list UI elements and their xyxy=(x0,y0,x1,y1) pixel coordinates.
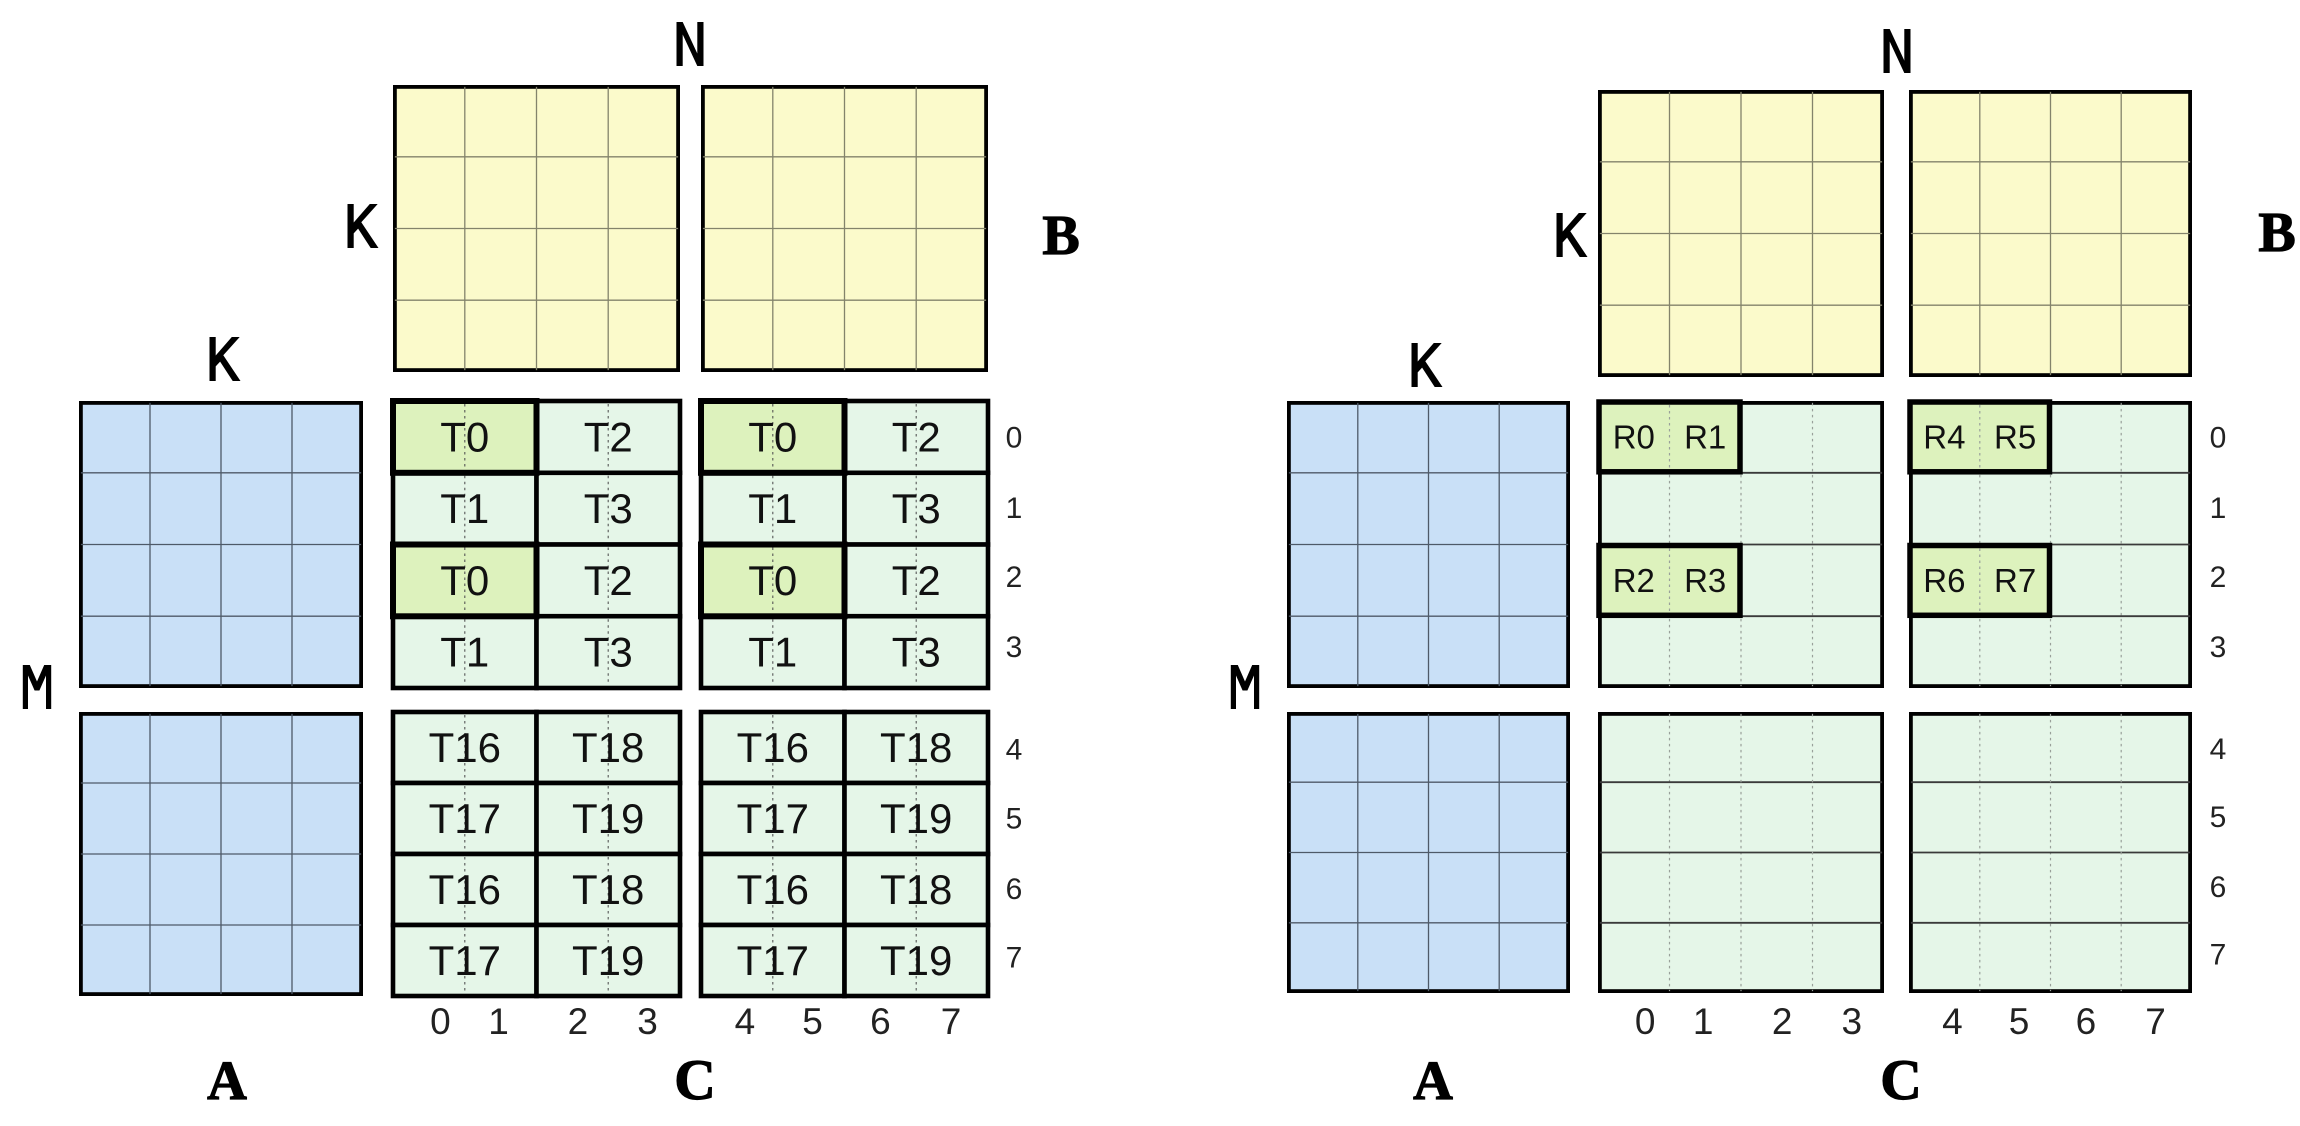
svg-text:1: 1 xyxy=(2210,492,2227,525)
svg-text:0: 0 xyxy=(1006,422,1023,455)
svg-text:T17: T17 xyxy=(429,937,501,984)
svg-text:T3: T3 xyxy=(892,629,941,676)
svg-text:5: 5 xyxy=(1006,802,1023,835)
svg-text:1: 1 xyxy=(1006,492,1023,525)
svg-text:T0: T0 xyxy=(440,557,489,604)
svg-text:R7: R7 xyxy=(1994,562,2036,599)
svg-text:T18: T18 xyxy=(880,866,952,913)
svg-text:T18: T18 xyxy=(572,866,644,913)
svg-text:T18: T18 xyxy=(880,724,952,771)
svg-text:T2: T2 xyxy=(584,557,633,604)
svg-text:R3: R3 xyxy=(1684,562,1726,599)
svg-text:3: 3 xyxy=(1842,1001,1863,1042)
svg-text:4: 4 xyxy=(1942,1001,1963,1042)
svg-text:T3: T3 xyxy=(892,485,941,532)
svg-text:T1: T1 xyxy=(440,485,489,532)
svg-text:T18: T18 xyxy=(572,724,644,771)
svg-text:T16: T16 xyxy=(737,724,809,771)
svg-text:T17: T17 xyxy=(429,795,501,842)
svg-text:0: 0 xyxy=(430,1001,451,1042)
svg-text:5: 5 xyxy=(802,1001,823,1042)
svg-text:C: C xyxy=(1880,1049,1922,1112)
svg-text:6: 6 xyxy=(2076,1001,2097,1042)
svg-text:T1: T1 xyxy=(748,629,797,676)
svg-text:T16: T16 xyxy=(429,866,501,913)
svg-text:R2: R2 xyxy=(1613,562,1655,599)
svg-text:T1: T1 xyxy=(748,485,797,532)
svg-text:2: 2 xyxy=(1772,1001,1793,1042)
svg-text:1: 1 xyxy=(488,1001,509,1042)
svg-text:T16: T16 xyxy=(737,866,809,913)
svg-text:4: 4 xyxy=(735,1001,756,1042)
svg-text:T19: T19 xyxy=(880,795,952,842)
svg-text:2: 2 xyxy=(568,1001,589,1042)
svg-text:T1: T1 xyxy=(440,629,489,676)
svg-text:0: 0 xyxy=(2210,422,2227,455)
svg-text:T3: T3 xyxy=(584,485,633,532)
svg-text:T2: T2 xyxy=(584,413,633,460)
svg-text:1: 1 xyxy=(1693,1001,1714,1042)
svg-text:T17: T17 xyxy=(737,937,809,984)
svg-text:3: 3 xyxy=(637,1001,658,1042)
svg-text:R0: R0 xyxy=(1613,418,1655,455)
svg-text:T0: T0 xyxy=(440,413,489,460)
svg-text:T0: T0 xyxy=(748,413,797,460)
svg-text:5: 5 xyxy=(2009,1001,2030,1042)
svg-text:R4: R4 xyxy=(1923,418,1965,455)
svg-text:T3: T3 xyxy=(584,629,633,676)
svg-text:T19: T19 xyxy=(572,937,644,984)
svg-text:A: A xyxy=(207,1050,247,1111)
svg-text:T2: T2 xyxy=(892,413,941,460)
svg-text:7: 7 xyxy=(2210,939,2227,972)
svg-text:T19: T19 xyxy=(880,937,952,984)
svg-text:R5: R5 xyxy=(1994,418,2036,455)
svg-text:3: 3 xyxy=(2210,631,2227,664)
svg-text:7: 7 xyxy=(941,1001,962,1042)
svg-text:0: 0 xyxy=(1635,1001,1656,1042)
svg-text:7: 7 xyxy=(2145,1001,2166,1042)
svg-text:4: 4 xyxy=(1006,733,1023,766)
svg-text:6: 6 xyxy=(870,1001,891,1042)
svg-text:C: C xyxy=(674,1049,716,1112)
svg-text:T16: T16 xyxy=(429,724,501,771)
svg-text:T17: T17 xyxy=(737,795,809,842)
svg-text:3: 3 xyxy=(1006,631,1023,664)
svg-text:5: 5 xyxy=(2210,801,2227,834)
svg-text:T2: T2 xyxy=(892,557,941,604)
svg-text:A: A xyxy=(1413,1050,1453,1111)
svg-text:4: 4 xyxy=(2210,733,2227,766)
svg-text:6: 6 xyxy=(1006,873,1023,906)
svg-text:R1: R1 xyxy=(1684,418,1726,455)
svg-text:B: B xyxy=(1042,205,1079,267)
svg-text:7: 7 xyxy=(1006,941,1023,974)
svg-text:2: 2 xyxy=(2210,561,2227,594)
svg-text:B: B xyxy=(2258,202,2295,264)
svg-text:6: 6 xyxy=(2210,871,2227,904)
svg-text:2: 2 xyxy=(1006,561,1023,594)
svg-text:T0: T0 xyxy=(748,557,797,604)
svg-text:T19: T19 xyxy=(572,795,644,842)
svg-text:R6: R6 xyxy=(1923,562,1965,599)
